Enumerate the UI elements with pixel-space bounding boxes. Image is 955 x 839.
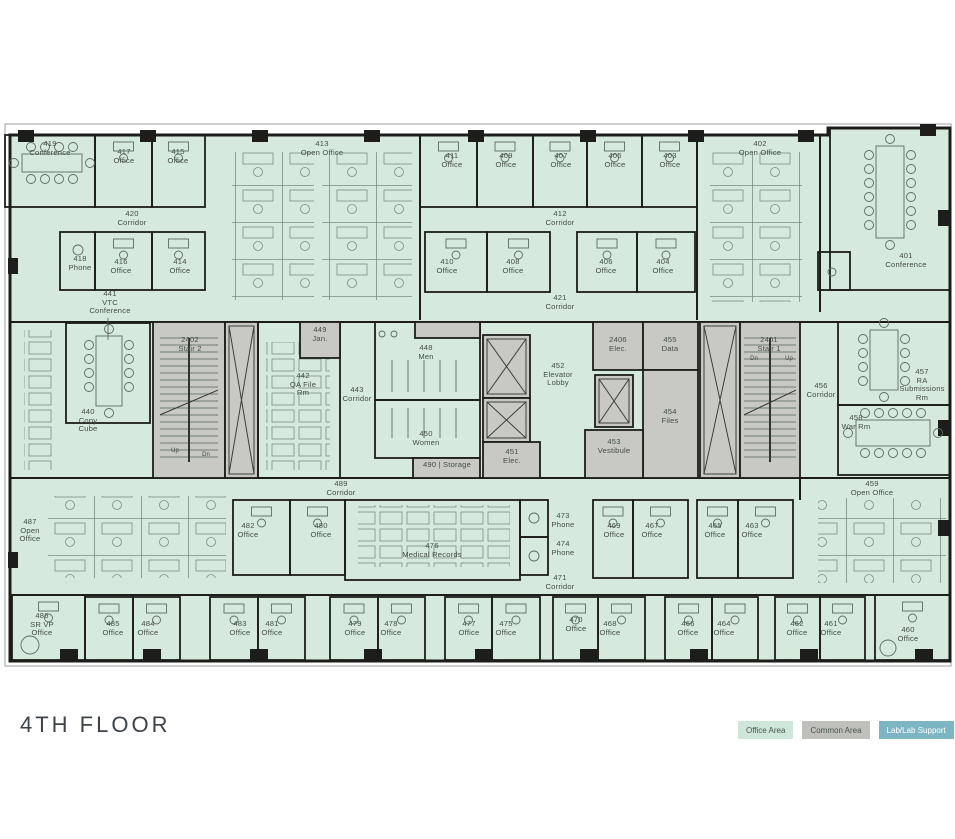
- room-2406: [593, 322, 643, 370]
- room-chase: [415, 322, 480, 338]
- floor-title: 4TH FLOOR: [20, 712, 170, 738]
- legend-item-lab-support: Lab/Lab Support: [879, 721, 954, 739]
- room-455: [643, 322, 698, 370]
- legend: Office Area Common Area Lab/Lab Support: [738, 721, 954, 739]
- room-490: [413, 458, 480, 478]
- legend-item-common-area: Common Area: [802, 721, 869, 739]
- floor-plan: 419 Conference417 Office415 Office413 Op…: [0, 0, 955, 839]
- room-451: [483, 442, 540, 478]
- legend-item-office-area: Office Area: [738, 721, 793, 739]
- room-453: [585, 430, 643, 478]
- room-449: [300, 322, 340, 358]
- room-454: [643, 370, 698, 478]
